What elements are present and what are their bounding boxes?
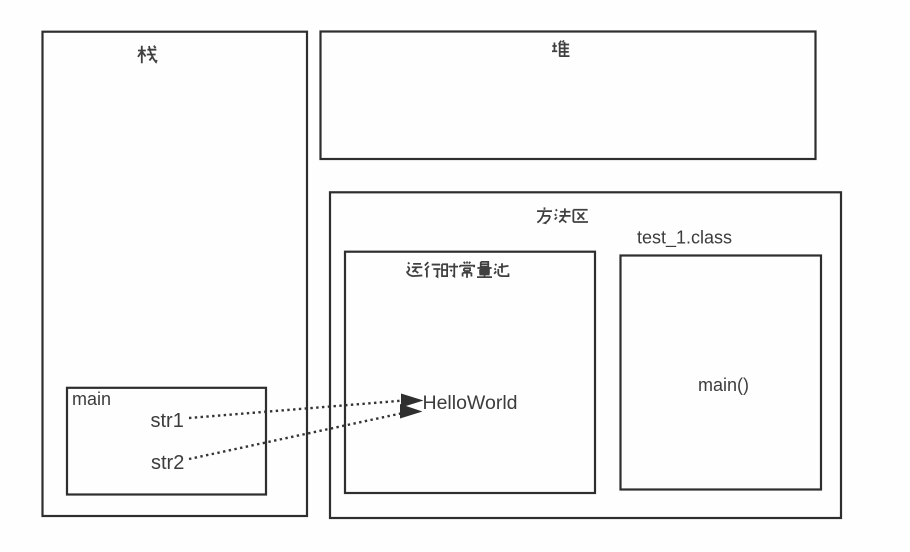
svg-text:HelloWorld: HelloWorld	[423, 392, 518, 414]
svg-text:str2: str2	[151, 452, 184, 474]
svg-text:main(): main()	[698, 375, 749, 395]
svg-text:main: main	[72, 389, 111, 409]
svg-text:str1: str1	[151, 410, 184, 432]
svg-text:test_1.class: test_1.class	[637, 228, 732, 249]
